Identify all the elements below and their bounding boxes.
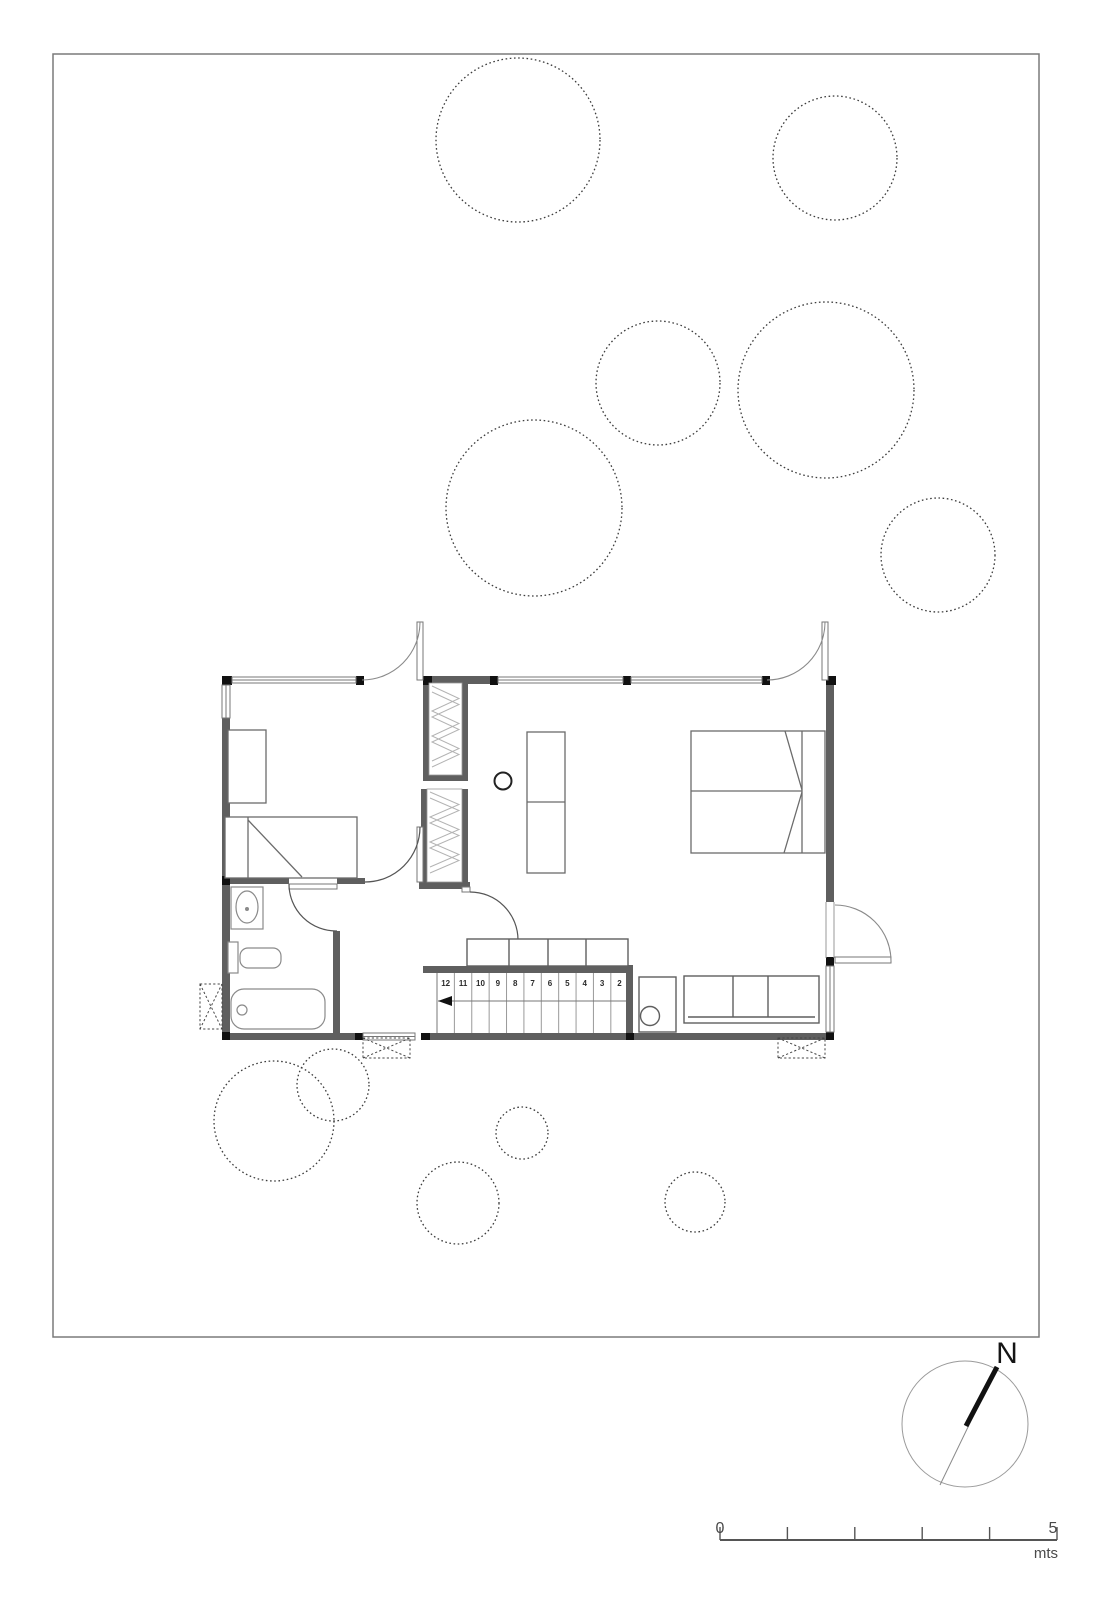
stair-number: 2 xyxy=(617,979,622,988)
north-label: N xyxy=(996,1337,1018,1370)
stair-number: 3 xyxy=(600,979,605,988)
bedroom-right xyxy=(691,731,825,853)
sofa-bench xyxy=(684,976,819,1023)
desk xyxy=(228,730,266,803)
double-bed xyxy=(691,731,825,853)
floor-plan-sheet: 12111098765432 N 0 5 mts xyxy=(0,0,1100,1600)
single-bed xyxy=(225,817,357,878)
building-floor-plan: 12111098765432 xyxy=(200,622,891,1058)
stair-number: 5 xyxy=(565,979,570,988)
stair-number: 11 xyxy=(459,979,468,988)
stair-number: 10 xyxy=(476,979,485,988)
entry-door-2-leaf xyxy=(822,622,828,680)
pendant-light xyxy=(495,773,512,790)
stair-number: 4 xyxy=(583,979,588,988)
scale-bar: 0 5 mts xyxy=(716,1520,1058,1562)
scale-unit-label: mts xyxy=(1034,1545,1058,1562)
kitchen-sink xyxy=(641,1007,660,1026)
stair-number: 12 xyxy=(441,979,450,988)
stair-number: 6 xyxy=(548,979,553,988)
hall-door-leaf xyxy=(462,887,470,892)
scale-ticks xyxy=(720,1527,1057,1540)
toilet-bowl xyxy=(240,948,281,968)
stair-number: 9 xyxy=(496,979,501,988)
stair-number: 7 xyxy=(530,979,535,988)
compass-needle-north xyxy=(966,1367,997,1426)
scale-start-label: 0 xyxy=(716,1520,725,1537)
bathtub-drain xyxy=(237,1005,247,1015)
stair-number: 8 xyxy=(513,979,518,988)
north-compass: N xyxy=(902,1337,1028,1487)
scale-end-label: 5 xyxy=(1049,1520,1058,1537)
entry-door-1-leaf xyxy=(417,622,423,680)
side-door-leaf xyxy=(835,957,891,963)
toilet-tank xyxy=(228,942,238,973)
bathroom-door-leaf xyxy=(289,884,337,889)
